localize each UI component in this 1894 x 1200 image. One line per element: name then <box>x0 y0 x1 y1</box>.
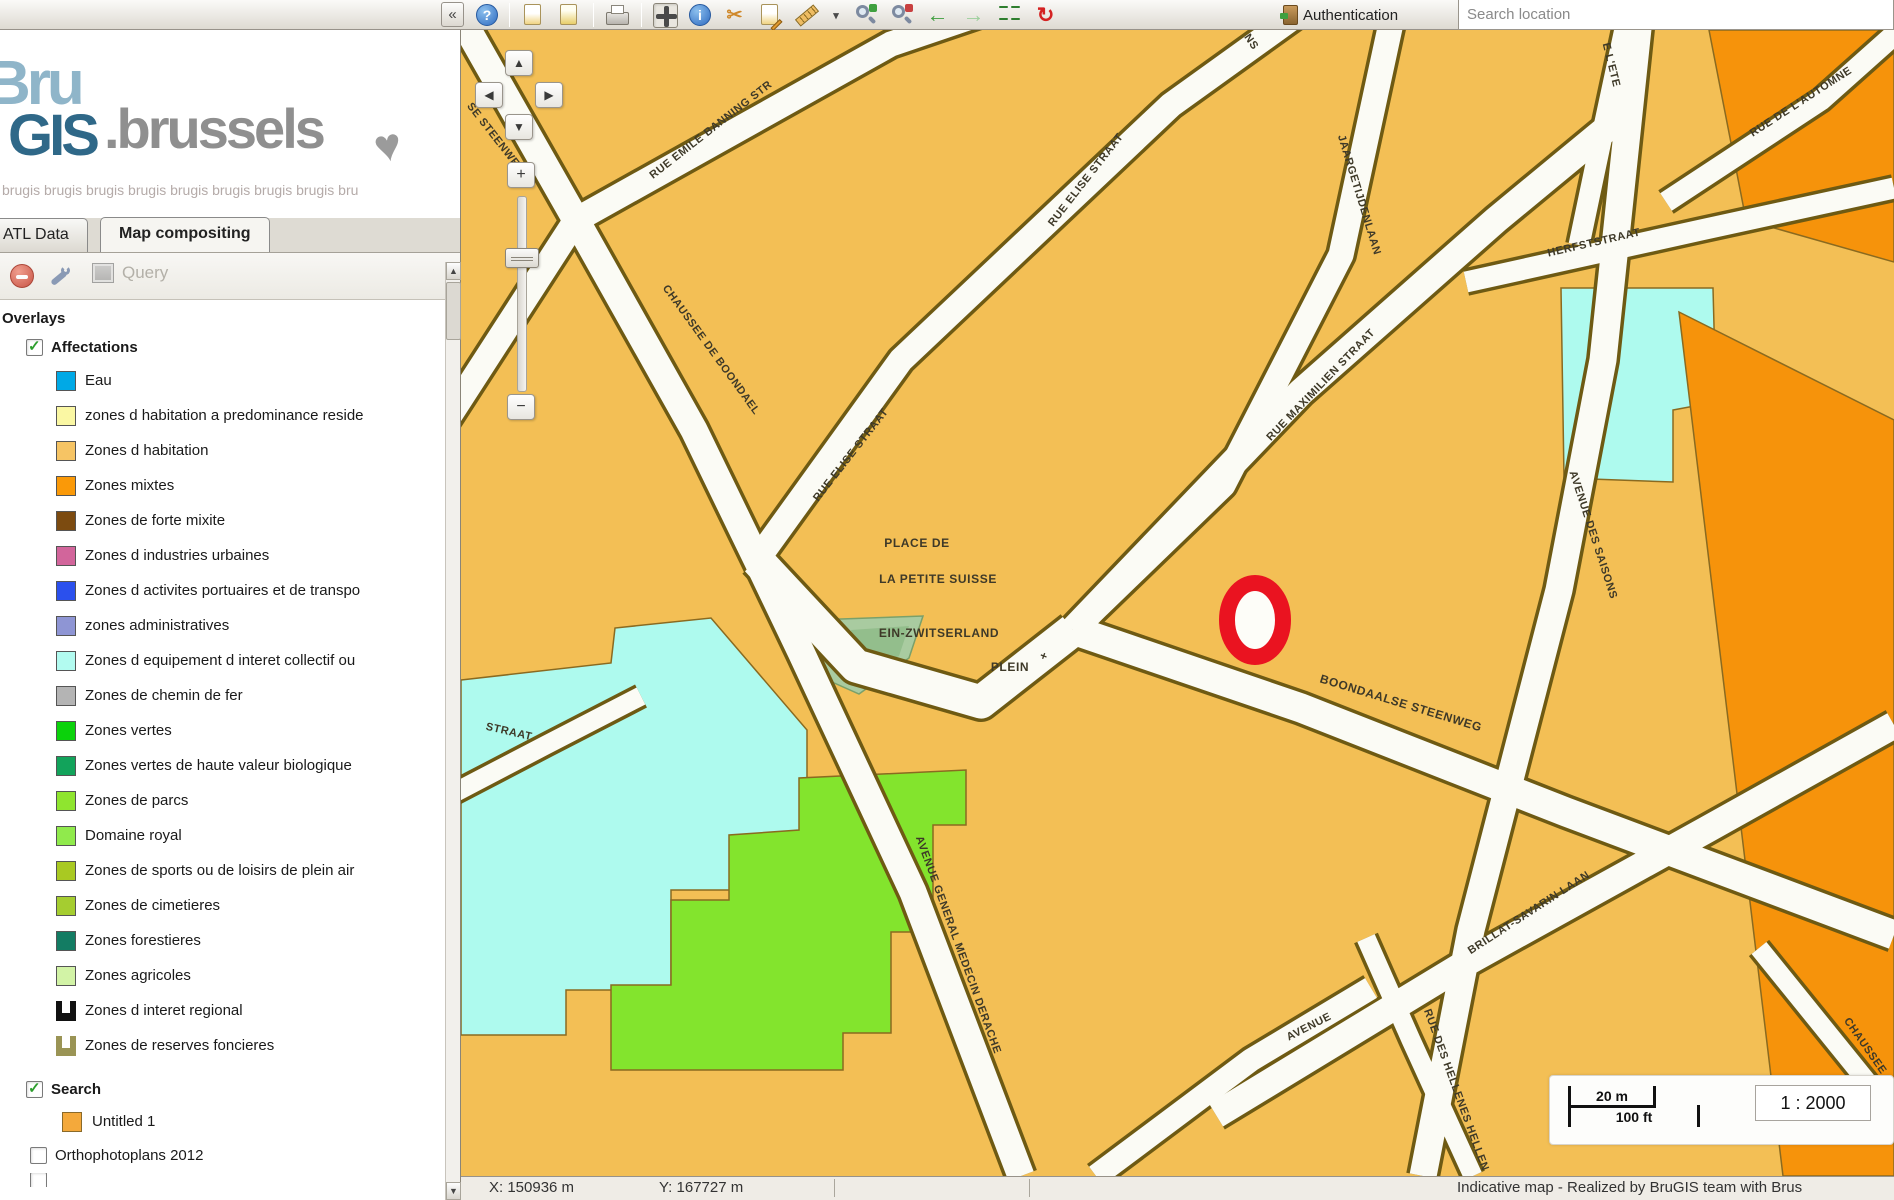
legend-swatch <box>56 966 76 986</box>
previous-extent-icon[interactable]: ← <box>925 3 950 28</box>
legend-swatch <box>56 1001 76 1021</box>
pan-icon[interactable] <box>653 3 678 28</box>
legend-swatch <box>56 406 76 426</box>
legend-swatch <box>56 371 76 391</box>
legend-label: Zones de reserves foncieres <box>85 1037 274 1054</box>
toolbar-buttons: ?i✂▾←→↻ <box>476 0 1058 30</box>
legend-swatch <box>56 1036 76 1056</box>
sidebar: Bru GIS .brussels ♥ brugis brugis brugis… <box>0 30 461 1200</box>
brugis-logo: Bru GIS .brussels ♥ brugis brugis brugis… <box>0 30 460 218</box>
map-credit: Indicative map - Realized by BruGIS team… <box>1457 1179 1894 1196</box>
tab-map-compositing[interactable]: Map compositing <box>100 217 270 252</box>
legend-swatch <box>56 861 76 881</box>
search-label: Search <box>51 1081 101 1098</box>
map-street-label: RUE DES HELLENES HELLEN <box>1421 1007 1491 1172</box>
search-checkbox[interactable] <box>26 1081 43 1098</box>
legend-swatch <box>56 581 76 601</box>
layer-orthophotoplans-2012[interactable]: Orthophotoplans 2012 <box>0 1138 445 1173</box>
legend-label: zones administratives <box>85 617 229 634</box>
status-separator <box>834 1179 835 1197</box>
scale-bar: 20 m 100 ft <box>1568 1086 1700 1127</box>
map-street-label: AVENUE DES SAISONS <box>1567 469 1620 600</box>
legend-label: Zones forestieres <box>85 932 201 949</box>
legend-label: Zones vertes <box>85 722 172 739</box>
remove-layer-icon[interactable] <box>10 264 34 288</box>
legend-item[interactable]: Zones d habitation <box>0 433 445 468</box>
legend-swatch <box>56 826 76 846</box>
partial-checkbox[interactable] <box>30 1173 47 1187</box>
map-street-label: RUE ELISE STRAAT <box>811 406 891 504</box>
legend-label: Zones de forte mixite <box>85 512 225 529</box>
map-street-label: NS <box>1241 32 1260 52</box>
map-street-label: RUE ELISE STRAAT <box>1046 131 1126 229</box>
query-button[interactable]: Query <box>92 263 168 283</box>
legend-label: Zones mixtes <box>85 477 174 494</box>
overlays-heading: Overlays <box>2 310 445 327</box>
legend-item[interactable]: Zones de sports ou de loisirs de plein a… <box>0 853 445 888</box>
toolbar-separator <box>593 3 594 27</box>
scroll-down-icon[interactable]: ▼ <box>446 1182 461 1200</box>
toolbar-separator <box>641 3 642 27</box>
logo-tagline: brugis brugis brugis brugis brugis brugi… <box>2 182 358 198</box>
layer-tree: Overlays Affectations Eauzones d habitat… <box>0 300 445 1200</box>
pan-down-button[interactable]: ▼ <box>505 114 533 140</box>
legend-label: Zones d habitation <box>85 442 208 459</box>
measure-caret-icon[interactable]: ▾ <box>830 3 842 28</box>
legend-swatch <box>56 791 76 811</box>
logo-gis-text: GIS <box>8 102 96 169</box>
zoom-slider-thumb[interactable] <box>505 248 539 268</box>
legend-swatch <box>56 896 76 916</box>
scale-feet: 100 ft <box>1568 1105 1700 1127</box>
scrollbar-thumb[interactable] <box>446 282 461 340</box>
legend-label: Zones de parcs <box>85 792 188 809</box>
map-street-label: CHAUSSEE DE BOONDAEL <box>660 283 762 417</box>
map-street-label: PLACE DE <box>884 536 949 550</box>
pan-right-button[interactable]: ▶ <box>535 82 563 108</box>
legend-swatch <box>56 511 76 531</box>
map-street-label: RUE EMILE BANNING STR <box>647 79 774 182</box>
map-street-label: AVENUE <box>1285 1011 1334 1044</box>
legend-item[interactable]: zones administratives <box>0 608 445 643</box>
legend-swatch <box>56 931 76 951</box>
legend-label: Zones d interet regional <box>85 1002 243 1019</box>
search-location-input[interactable] <box>1458 0 1894 30</box>
legend-label: Zones de chemin de fer <box>85 687 243 704</box>
legend-swatch <box>56 616 76 636</box>
sidebar-collapse-button[interactable]: « <box>441 2 464 27</box>
layer-affectations[interactable]: Affectations <box>0 331 445 363</box>
legend-item[interactable]: Domaine royal <box>0 818 445 853</box>
logo-brussels-text: .brussels <box>104 96 323 161</box>
save-map-icon[interactable] <box>521 3 546 28</box>
orthophotoplans-label: Orthophotoplans 2012 <box>55 1147 203 1164</box>
map-street-label: LA PETITE SUISSE <box>879 572 997 586</box>
legend-swatch <box>56 441 76 461</box>
orthophotoplans-checkbox[interactable] <box>30 1147 47 1164</box>
select-cut-icon[interactable]: ✂ <box>722 3 747 28</box>
legend-item[interactable]: Zones de cimetieres <box>0 888 445 923</box>
zoom-in-button[interactable]: + <box>507 162 535 188</box>
sidebar-scrollbar[interactable]: ▲ ▼ <box>445 262 460 1200</box>
scale-ratio-input[interactable]: 1 : 2000 <box>1755 1085 1871 1121</box>
legend-label: Zones de sports ou de loisirs de plein a… <box>85 862 354 879</box>
legend-swatch <box>56 721 76 741</box>
layer-partial-row[interactable] <box>0 1173 445 1187</box>
door-icon <box>1283 5 1298 25</box>
cursor-y-coordinate: Y: 167727 m <box>659 1179 743 1196</box>
legend-item[interactable]: Zones de chemin de fer <box>0 678 445 713</box>
measure-icon[interactable] <box>794 3 819 28</box>
legend-label: Zones d activites portuaires et de trans… <box>85 582 360 599</box>
legend-item[interactable]: zones d habitation a predominance reside <box>0 398 445 433</box>
sidebar-tabs: ATL Data Map compositing <box>0 218 460 253</box>
scale-panel: 20 m 100 ft 1 : 2000 <box>1549 1075 1894 1145</box>
legend-swatch <box>56 546 76 566</box>
legend-label: Zones d industries urbaines <box>85 547 269 564</box>
wrench-icon[interactable] <box>48 266 70 288</box>
map-street-label: PLEIN <box>991 660 1029 674</box>
legend-item[interactable]: Zones vertes <box>0 713 445 748</box>
map-street-label: BOONDAALSE STEENWEG <box>1318 672 1483 735</box>
untitled-label: Untitled 1 <box>92 1113 155 1130</box>
legend-item[interactable]: Zones d equipement d interet collectif o… <box>0 643 445 678</box>
map-street-label: + <box>1038 648 1050 664</box>
help-icon[interactable]: ? <box>476 4 498 26</box>
pan-up-button[interactable]: ▲ <box>505 50 533 76</box>
heart-icon: ♥ <box>370 116 406 174</box>
pan-left-button[interactable]: ◀ <box>475 82 503 108</box>
zoom-out-button[interactable]: − <box>507 394 535 420</box>
authentication-button[interactable]: Authentication <box>1283 0 1398 30</box>
legend-item[interactable]: Zones d interet regional <box>0 993 445 1028</box>
legend-label: Zones de cimetieres <box>85 897 220 914</box>
map-street-label: STRAAT <box>485 721 534 743</box>
legend-item[interactable]: Zones d industries urbaines <box>0 538 445 573</box>
full-extent-icon[interactable] <box>997 3 1022 28</box>
cursor-x-coordinate: X: 150936 m <box>489 1179 574 1196</box>
status-separator <box>1029 1179 1030 1197</box>
map-toolbar: « ?i✂▾←→↻ Authentication <box>0 0 1894 30</box>
legend-label: Zones agricoles <box>85 967 191 984</box>
map-street-label: BRILLAT-SAVARIN LAAN <box>1466 869 1592 957</box>
legend-item[interactable]: Zones agricoles <box>0 958 445 993</box>
tab-atl-data[interactable]: ATL Data <box>0 218 88 252</box>
layer-toolbar: Query <box>0 253 460 300</box>
map-street-label: EIN-ZWITSERLAND <box>879 626 999 640</box>
refresh-locate-icon[interactable]: ↻ <box>1033 3 1058 28</box>
print-icon[interactable] <box>605 3 630 28</box>
legend-item[interactable]: Zones mixtes <box>0 468 445 503</box>
authentication-label: Authentication <box>1303 7 1398 24</box>
legend-label: Eau <box>85 372 112 389</box>
legend-item[interactable]: Zones vertes de haute valeur biologique <box>0 748 445 783</box>
export-map-icon[interactable] <box>557 3 582 28</box>
map-street-label: RUE DE L'AUTOMNE <box>1748 65 1854 140</box>
info-icon[interactable]: i <box>689 4 711 26</box>
map-street-label: HERFSTSTRAAT <box>1546 226 1641 259</box>
legend-label: Domaine royal <box>85 827 182 844</box>
legend-label: Zones vertes de haute valeur biologique <box>85 757 352 774</box>
zoom-out-icon[interactable] <box>889 3 914 28</box>
zoom-in-icon[interactable] <box>853 3 878 28</box>
legend-swatch <box>56 686 76 706</box>
map-street-label: AVENUE GENERAL MEDECIN DERACHE <box>913 834 1003 1055</box>
zoom-slider-track[interactable] <box>517 196 527 392</box>
map-street-label: JAARGETIJDENLAAN <box>1335 133 1383 256</box>
legend-item[interactable]: Eau <box>0 363 445 398</box>
scroll-up-icon[interactable]: ▲ <box>446 262 461 280</box>
map-street-label: CHAUSSEE <box>1841 1016 1889 1077</box>
status-bar: X: 150936 m Y: 167727 m Indicative map -… <box>461 1176 1894 1200</box>
query-label: Query <box>122 263 168 283</box>
legend-swatch <box>56 476 76 496</box>
affectations-legend: Eauzones d habitation a predominance res… <box>0 363 445 1063</box>
legend-swatch <box>56 756 76 776</box>
map-street-label: RUE MAXIMILIEN STRAAT <box>1264 327 1377 444</box>
legend-item[interactable]: Zones de forte mixite <box>0 503 445 538</box>
legend-item[interactable]: Zones de parcs <box>0 783 445 818</box>
layer-search[interactable]: Search <box>0 1073 445 1105</box>
legend-label: zones d habitation a predominance reside <box>85 407 364 424</box>
untitled-swatch <box>62 1112 82 1132</box>
edit-page-icon[interactable] <box>758 3 783 28</box>
building-icon <box>92 263 114 283</box>
affectations-label: Affectations <box>51 339 138 356</box>
map-canvas[interactable]: RUE EMILE BANNING STRSE STEENWECHAUSSEE … <box>461 30 1894 1176</box>
affectations-checkbox[interactable] <box>26 339 43 356</box>
legend-item[interactable]: Zones de reserves foncieres <box>0 1028 445 1063</box>
legend-item[interactable]: Zones d activites portuaires et de trans… <box>0 573 445 608</box>
legend-item[interactable]: Zones forestieres <box>0 923 445 958</box>
toolbar-separator <box>509 3 510 27</box>
legend-label: Zones d equipement d interet collectif o… <box>85 652 355 669</box>
search-result-untitled[interactable]: Untitled 1 <box>0 1105 445 1138</box>
legend-swatch <box>56 651 76 671</box>
next-extent-icon[interactable]: → <box>961 3 986 28</box>
map-labels: RUE EMILE BANNING STRSE STEENWECHAUSSEE … <box>461 30 1894 1176</box>
map-street-label: E L'ETE <box>1600 42 1623 89</box>
